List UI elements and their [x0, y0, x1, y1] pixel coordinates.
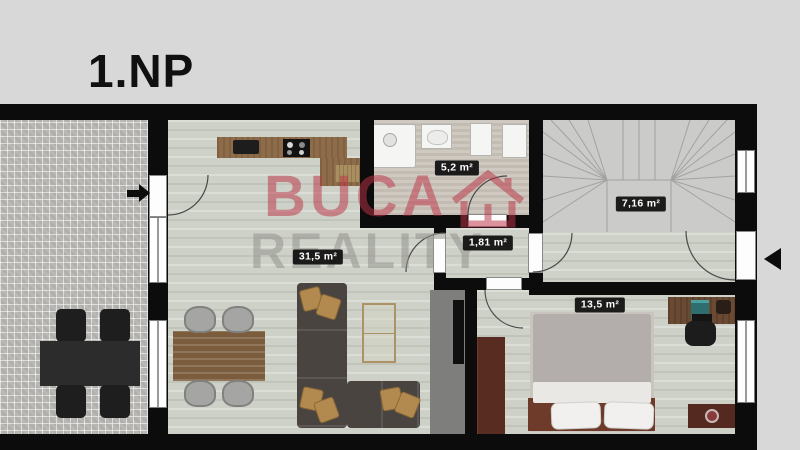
- floorplan-page: { "header": { "title": "1.NP" }, "waterm…: [0, 0, 800, 450]
- main-entry-arrow-icon: [764, 248, 781, 270]
- bedroom-area-label: 13,5 m²: [575, 298, 625, 313]
- house-icon: [452, 170, 524, 228]
- bathroom-area-label: 5,2 m²: [435, 161, 479, 176]
- watermark-brand-top: BUCA: [264, 168, 448, 226]
- watermark-brand-bottom: REALITY: [250, 226, 485, 276]
- terrace-entry-arrow-icon: [139, 184, 150, 202]
- living-room-area-label: 31,5 m²: [293, 250, 343, 265]
- staircase-area-label: 7,16 m²: [616, 197, 666, 212]
- hallway-area-label: 1,81 m²: [463, 236, 513, 251]
- floor-title: 1.NP: [88, 44, 194, 98]
